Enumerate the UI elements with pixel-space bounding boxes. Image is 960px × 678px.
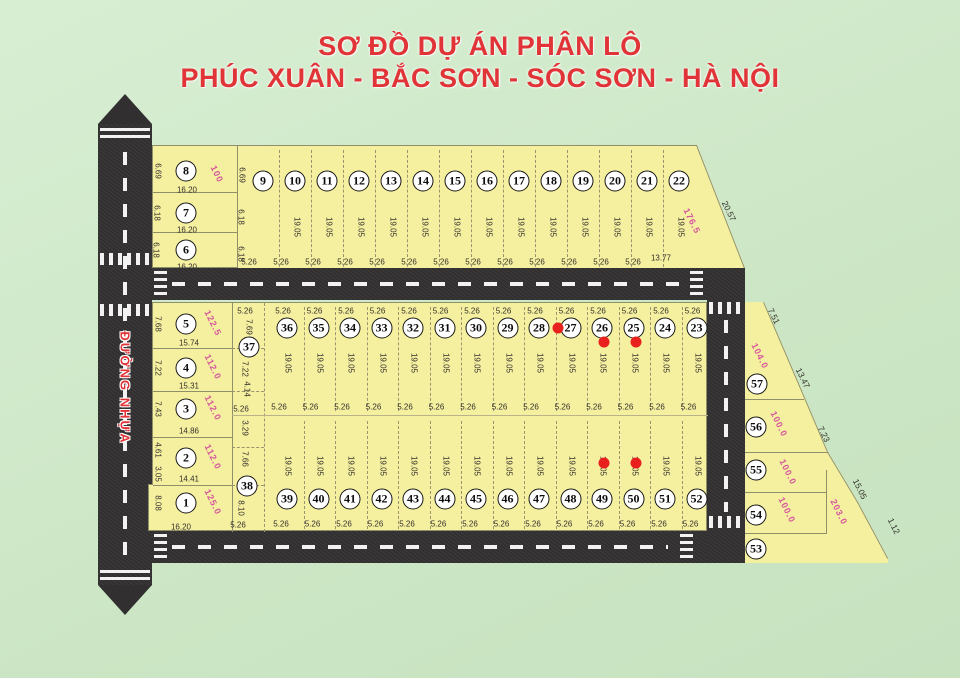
road-stop-line [100,570,150,573]
road-centerline [724,320,728,512]
plot-49-width-label: 5.26 [588,520,604,529]
plot-18-width-label: 5.26 [529,258,545,267]
plot-4-number: 4 [176,358,197,379]
plot-35-width-label: 5.26 [307,307,323,316]
plot-4-bottom-label: 15.31 [179,382,199,391]
plot-5-side-label: 7.68 [154,316,163,332]
block-main-step [148,484,153,531]
plot-divider [524,307,525,411]
plot-12-width-label: 5.26 [337,258,353,267]
mid-column-bottom-width-label: 5.26 [230,521,246,530]
plot-38-segment-label: 8.10 [237,500,246,516]
plot-52-number: 52 [686,489,707,510]
plot-27-sold-dot [552,323,563,334]
plot-47-depth-label: 19.05 [536,456,545,476]
plot-45-depth-label: 19.05 [473,456,482,476]
plot-25-width-label: 5.26 [622,307,638,316]
plot-divider [663,150,664,267]
plot-15-number: 15 [445,171,466,192]
plot-51-depth-label: 19.05 [662,456,671,476]
plot-divider [367,421,368,529]
plot-15-depth-label: 19.05 [453,217,462,237]
plot-1-bottom-label: 16.20 [171,523,191,532]
plot-20-width-label: 5.26 [593,258,609,267]
plot-45-width-label: 5.26 [462,520,478,529]
plot-divider [461,307,462,411]
block-top-row [238,145,745,268]
land-plot-map: SƠ ĐỒ DỰ ÁN PHÂN LÔ PHÚC XUÂN - BẮC SƠN … [0,0,960,678]
plot-11-width-label: 5.26 [305,258,321,267]
plot-26-width-label: 5.26 [590,307,606,316]
plot-29-width-label: 5.26 [496,307,512,316]
plot-divider [430,307,431,411]
plot-37-segment-label: 4.14 [243,381,252,397]
plot-divider [567,150,568,267]
plot-35-depth-label: 19.05 [315,353,324,373]
plot-52-depth-label: 19.05 [693,456,702,476]
plot-14-width-label: 5.26 [401,258,417,267]
plot-divider [304,421,305,529]
plot-divider [587,307,588,411]
plot-26-number: 26 [592,318,613,339]
plot-39-width-label: 5.26 [273,520,289,529]
plot-7-side-label: 6.18 [153,205,162,221]
plot-divider [398,421,399,529]
plot-line [153,348,232,349]
plot-56-number: 56 [746,417,767,438]
plot-45-number: 45 [466,489,487,510]
crosswalk [100,304,150,316]
plot-40-width-label: 5.26 [305,520,321,529]
plot-7-number: 7 [176,203,197,224]
plot-35-number: 35 [308,318,329,339]
plot-line [238,145,697,146]
plot-29-number: 29 [497,318,518,339]
plot-20-number: 20 [605,171,626,192]
plot-24-width-label: 5.26 [653,307,669,316]
plot-6-bottom-label: 16.20 [177,263,197,272]
plot-line [153,391,232,392]
plot-54-number: 54 [746,505,767,526]
plot-15-width-label: 5.26 [433,258,449,267]
plot-32-rear-width-label: 5.26 [397,403,413,412]
plot-divider [599,150,600,267]
mid-column-top-width-label: 5.26 [237,307,253,316]
plot-46-width-label: 5.26 [494,520,510,529]
plot-23-depth-label: 19.05 [693,353,702,373]
plot-10-depth-label: 19.05 [293,217,302,237]
plot-43-width-label: 5.26 [399,520,415,529]
plot-41-width-label: 5.26 [336,520,352,529]
plot-37-segment-label: 7.22 [241,361,250,377]
plot-31-width-label: 5.26 [433,307,449,316]
plot-divider [682,307,683,411]
plot-49-sold-dot [599,458,610,469]
plot-21-width-label: 5.26 [625,258,641,267]
plot-39-number: 39 [277,489,298,510]
plot-divider [367,307,368,411]
plot-53-number: 53 [746,539,767,560]
plot-48-width-label: 5.26 [557,520,573,529]
plot-46-depth-label: 19.05 [504,456,513,476]
plot-2-side-label: 3.05 [154,466,163,482]
plot-29-depth-label: 19.05 [504,353,513,373]
road-arrow-down-icon [98,585,152,615]
plot-13-number: 13 [381,171,402,192]
plot-42-number: 42 [371,489,392,510]
plot-39-depth-label: 19.05 [284,456,293,476]
plot-line [745,399,804,400]
plot-41-depth-label: 19.05 [347,456,356,476]
plot-divider [461,421,462,529]
plot-8-bottom-label: 16.20 [177,186,197,195]
plot-line [826,470,827,533]
plot-8-side-label: 6.69 [154,163,163,179]
plot-4-side-label: 7.22 [154,360,163,376]
plot-22-number: 22 [669,171,690,192]
plot-31-rear-width-label: 5.26 [429,403,445,412]
plot-19-number: 19 [573,171,594,192]
plot-26-depth-label: 19.05 [599,353,608,373]
plot-8-number: 8 [176,161,197,182]
plot-40-number: 40 [308,489,329,510]
plot-38-segment-label: 3.29 [241,420,250,436]
road-stop-line [100,128,150,131]
plot-42-width-label: 5.26 [368,520,384,529]
plot-41-number: 41 [340,489,361,510]
plot-16-width-label: 5.26 [465,258,481,267]
plot-11-number: 11 [317,171,338,192]
plot-23-width-label: 5.26 [685,307,701,316]
plot-34-number: 34 [340,318,361,339]
plot-3-number: 3 [176,399,197,420]
plot-32-depth-label: 19.05 [410,353,419,373]
plot-36-width-label: 5.26 [275,307,291,316]
plot-46-number: 46 [497,489,518,510]
crosswalk [709,302,743,314]
plot-divider [398,307,399,411]
plot-21-depth-label: 19.05 [645,217,654,237]
plot-11-depth-label: 19.05 [325,217,334,237]
road-centerline [172,545,668,549]
plot-line [153,437,232,438]
crosswalk [154,271,167,297]
plot-33-width-label: 5.26 [370,307,386,316]
plot-divider [619,307,620,411]
plot-18-depth-label: 19.05 [549,217,558,237]
plot-36-depth-label: 19.05 [284,353,293,373]
mid-column-mid-width-label: 5.26 [233,405,249,414]
plot-12-number: 12 [349,171,370,192]
plot-43-depth-label: 19.05 [410,456,419,476]
plot-2-bottom-label: 14.41 [179,475,199,484]
plot-divider [343,150,344,267]
plot-44-number: 44 [434,489,455,510]
plot-37-segment-label: 7.69 [245,319,254,335]
plot-36-rear-width-label: 5.26 [271,403,287,412]
plot-3-bottom-label: 14.86 [179,427,199,436]
plot-22-depth-label: 19.05 [677,217,686,237]
plot-50-width-label: 5.26 [620,520,636,529]
plot-23-number: 23 [686,318,707,339]
plot-divider [264,303,265,532]
plot-34-depth-label: 19.05 [347,353,356,373]
plot-line [745,492,827,493]
plot-3-side-label: 7.43 [154,401,163,417]
plot-2-side-label: 4.61 [154,442,163,458]
plot-48-number: 48 [560,489,581,510]
plot-50-number: 50 [623,489,644,510]
plot-5-bottom-label: 15.74 [179,339,199,348]
plot-18-number: 18 [541,171,562,192]
plot-40-depth-label: 19.05 [315,456,324,476]
plot-16-number: 16 [477,171,498,192]
plot-30-number: 30 [466,318,487,339]
plot-52-width-label: 5.26 [683,520,699,529]
plot-32-width-label: 5.26 [401,307,417,316]
plot-23-rear-width-label: 5.26 [681,403,697,412]
plot-19-width-label: 5.26 [561,258,577,267]
plot-34-rear-width-label: 5.26 [334,403,350,412]
plot-44-width-label: 5.26 [431,520,447,529]
plot-12-depth-label: 19.05 [357,217,366,237]
plot-33-depth-label: 19.05 [378,353,387,373]
plot-divider [407,150,408,267]
plot-25-number: 25 [623,318,644,339]
plot-14-depth-label: 19.05 [421,217,430,237]
plot-29-rear-width-label: 5.26 [492,403,508,412]
plot-divider [535,150,536,267]
plot-5-number: 5 [176,314,197,335]
plot-38-number: 38 [237,476,258,497]
plot-24-depth-label: 19.05 [662,353,671,373]
plot-47-width-label: 5.26 [525,520,541,529]
plot-divider [335,421,336,529]
plot-24-rear-width-label: 5.26 [649,403,665,412]
plot-1-number: 1 [176,493,197,514]
plot-divider [650,307,651,411]
map-title: SƠ ĐỒ DỰ ÁN PHÂN LÔ PHÚC XUÂN - BẮC SƠN … [0,30,960,95]
plot-divider [682,421,683,529]
plot-line [745,533,827,534]
plot-divider [304,307,305,411]
plot-38-segment-label: 7.66 [241,451,250,467]
plot-42-depth-label: 19.05 [378,456,387,476]
crosswalk [154,534,167,560]
plot-divider [619,421,620,529]
plot-divider [650,421,651,529]
plot-10-width-label: 5.26 [273,258,289,267]
plot-6-side-label: 6.18 [152,242,161,258]
plot-43-number: 43 [403,489,424,510]
plot-13-width-label: 5.26 [369,258,385,267]
plot-8-side-label: 6.69 [238,167,247,183]
plot-9-number: 9 [253,171,274,192]
plot-divider [335,307,336,411]
plot-16-depth-label: 19.05 [485,217,494,237]
road-centerline [172,282,686,286]
road-stop-line [100,577,150,580]
plot-30-rear-width-label: 5.26 [460,403,476,412]
plot-line [232,415,708,416]
plot-7-side-label: 6.18 [237,209,246,225]
plot-6-number: 6 [176,240,197,261]
plot-51-width-label: 5.26 [651,520,667,529]
title-line-2: PHÚC XUÂN - BẮC SƠN - SÓC SƠN - HÀ NỘI [0,62,960,94]
crosswalk [680,534,693,560]
road-stop-line [100,135,150,138]
plot-28-width-label: 5.26 [527,307,543,316]
plot-divider [493,307,494,411]
plot-26-sold-dot [599,337,610,348]
plot-13-depth-label: 19.05 [389,217,398,237]
plot-divider [471,150,472,267]
plot-divider [503,150,504,267]
plot-25-depth-label: 19.05 [630,353,639,373]
plot-49-number: 49 [592,489,613,510]
plot-44-depth-label: 19.05 [441,456,450,476]
plot-28-depth-label: 19.05 [536,353,545,373]
plot-divider [524,421,525,529]
plot-divider [493,421,494,529]
plot-1-side-label: 8.08 [154,495,163,511]
plot-divider [232,447,264,448]
plot-21-number: 21 [637,171,658,192]
plot-28-number: 28 [529,318,550,339]
plot-24-number: 24 [655,318,676,339]
plot-divider [430,421,431,529]
plot-33-rear-width-label: 5.26 [366,403,382,412]
plot-divider [587,421,588,529]
plot-30-depth-label: 19.05 [473,353,482,373]
plot-35-rear-width-label: 5.26 [303,403,319,412]
plot-30-width-label: 5.26 [464,307,480,316]
plot-27-number: 27 [560,318,581,339]
plot-36-number: 36 [277,318,298,339]
plot-31-depth-label: 19.05 [441,353,450,373]
plot-14-number: 14 [413,171,434,192]
plot-line [153,485,232,486]
plot-27-width-label: 5.26 [559,307,575,316]
plot-divider [375,150,376,267]
plot-22-width-label: 13.77 [651,254,671,263]
plot-28-rear-width-label: 5.26 [523,403,539,412]
plot-31-number: 31 [434,318,455,339]
crosswalk [690,271,703,297]
plot-20-depth-label: 19.05 [613,217,622,237]
plot-48-depth-label: 19.05 [567,456,576,476]
crosswalk [709,516,743,528]
plot-divider [311,150,312,267]
plot-50-sold-dot [630,458,641,469]
plot-55-number: 55 [746,460,767,481]
plot-17-width-label: 5.26 [497,258,513,267]
plot-divider [556,421,557,529]
plot-25-sold-dot [630,337,641,348]
plot-37-number: 37 [239,337,260,358]
plot-57-number: 57 [747,374,768,395]
plot-26-rear-width-label: 5.26 [586,403,602,412]
boundary-edge-label: 1.12 [886,516,902,535]
plot-33-number: 33 [371,318,392,339]
plot-19-depth-label: 19.05 [581,217,590,237]
plot-25-rear-width-label: 5.26 [618,403,634,412]
road-name-label: ĐƯỜNG NHỰA [118,331,133,444]
plot-divider [631,150,632,267]
crosswalk [100,253,150,265]
plot-line [827,452,858,503]
title-line-1: SƠ ĐỒ DỰ ÁN PHÂN LÔ [0,30,960,62]
plot-7-bottom-label: 16.20 [177,226,197,235]
plot-27-rear-width-label: 5.26 [555,403,571,412]
plot-divider [279,150,280,267]
plot-line [232,303,233,532]
plot-17-number: 17 [509,171,530,192]
plot-2-number: 2 [176,448,197,469]
plot-27-depth-label: 19.05 [567,353,576,373]
plot-10-number: 10 [285,171,306,192]
plot-51-number: 51 [655,489,676,510]
road-arrow-up-icon [98,94,152,124]
plot-line [857,502,888,559]
plot-32-number: 32 [403,318,424,339]
plot-9-width-label: 5.26 [241,258,257,267]
plot-47-number: 47 [529,489,550,510]
plot-line [745,452,829,453]
plot-17-depth-label: 19.05 [517,217,526,237]
plot-34-width-label: 5.26 [338,307,354,316]
plot-divider [439,150,440,267]
